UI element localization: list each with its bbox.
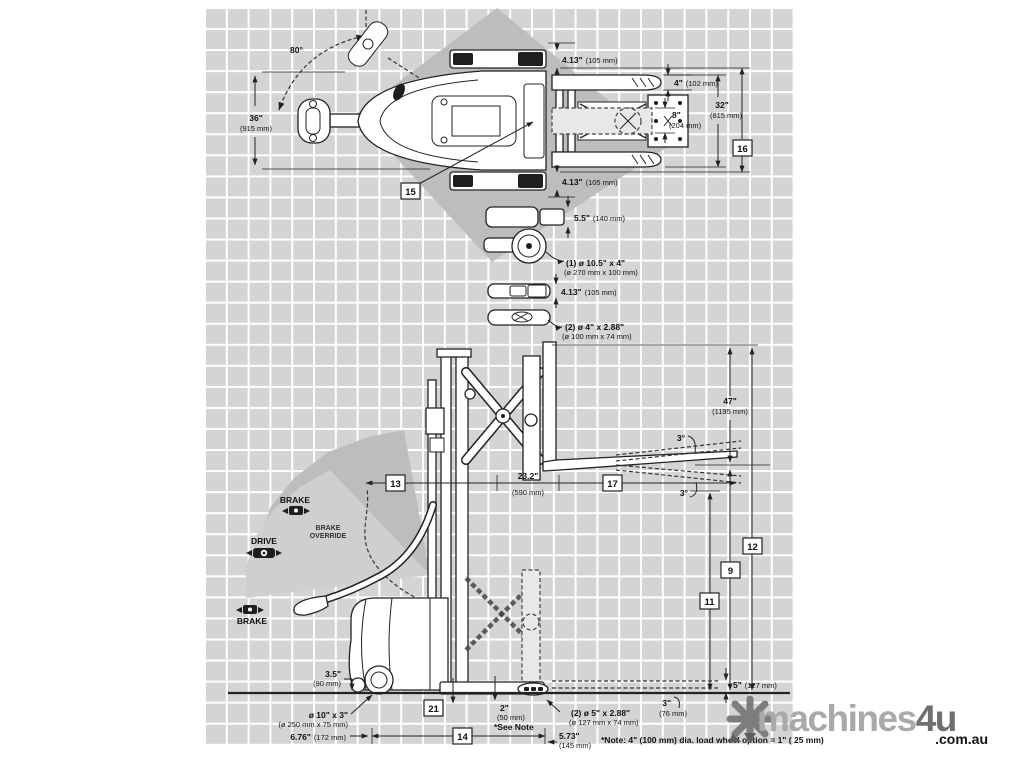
inner-spread-mm: (204 mm): [669, 121, 702, 130]
tilt-down-label: 3°: [680, 488, 689, 498]
tiller-width-mm: (915 mm): [240, 124, 273, 133]
svg-text:4.13"(105 mm): 4.13"(105 mm): [562, 177, 618, 187]
caster-width-mm: (105 mm): [585, 288, 618, 297]
fork-bottom: [552, 152, 661, 167]
inner-spread-in: 8": [672, 110, 681, 120]
drive-tire-bar: [486, 207, 538, 227]
watermark-domain: .com.au: [935, 731, 988, 747]
fork-thickness-in: 4": [674, 78, 683, 88]
drive-tire-width-mm: (140 mm): [593, 214, 626, 223]
lift-height-mm: (1195 mm): [712, 407, 748, 416]
outrigger-bottom-in: 4.13": [562, 177, 583, 187]
watermark-name: machines: [757, 698, 917, 739]
marker-11: 11: [704, 597, 715, 608]
svg-text:5"(127 mm): 5"(127 mm): [733, 680, 777, 690]
marker-15: 15: [405, 187, 416, 198]
reach-in: 23.2": [518, 471, 539, 481]
marker-16: 16: [737, 144, 748, 155]
tip-height-in: 3": [662, 698, 671, 708]
drive-wheel-size: ø 10" x 3": [309, 710, 348, 720]
drive-wheel-size-mm: (ø 250 mm x 75 mm): [278, 720, 348, 729]
marker-21: 21: [428, 704, 439, 715]
svg-text:4.13"(105 mm): 4.13"(105 mm): [561, 287, 617, 297]
gap-in: 2": [500, 703, 509, 713]
tip-height-mm: (76 mm): [659, 709, 687, 718]
underclearance-mm: (90 mm): [313, 679, 341, 688]
load-wheel-size-top: (2) ø 4" x 2.88": [565, 322, 624, 332]
outrigger-top-mm: (105 mm): [586, 56, 619, 65]
overhang-mm: (145 mm): [559, 741, 592, 750]
load-wheel-size-top-mm: (ø 100 mm x 74 mm): [562, 332, 632, 341]
load-wheel-size-side-mm: (ø 127 mm x 74 mm): [569, 718, 639, 727]
overhang-in: 5.73": [559, 731, 580, 741]
marker-17: 17: [607, 479, 618, 490]
front-to-wheel-in: 6.76": [290, 732, 311, 742]
marker-9: 9: [728, 566, 733, 577]
outrigger-top-in: 4.13": [562, 55, 583, 65]
see-note-label: *See Note: [494, 722, 534, 732]
swing-angle-label: 80°: [290, 45, 303, 55]
svg-text:4.13"(105 mm): 4.13"(105 mm): [562, 55, 618, 65]
outrigger-bottom-mm: (105 mm): [586, 178, 619, 187]
lowered-height-mm: (127 mm): [745, 681, 778, 690]
gap-mm: (50 mm): [497, 713, 525, 722]
load-wheel-size-side: (2) ø 5" x 2.88": [571, 708, 630, 718]
svg-text:4"(102 mm): 4"(102 mm): [674, 78, 718, 88]
svg-text:6.76"(172 mm): 6.76"(172 mm): [290, 732, 346, 742]
diagram-svg: 80° 36" (915 mm) 4.13"(105 mm) 4"(102 mm…: [0, 0, 1024, 768]
marker-13: 13: [390, 479, 401, 490]
fork-back-raised: [543, 342, 556, 464]
fork-top: [552, 75, 661, 90]
drive-label: DRIVE: [251, 536, 277, 546]
drive-tire-size-mm: (ø 270 mm x 100 mm): [564, 268, 638, 277]
tilt-up-label: 3°: [677, 433, 686, 443]
fork-thickness-mm: (102 mm): [686, 79, 719, 88]
tiller-width-in: 36": [249, 113, 263, 123]
marker-14: 14: [457, 732, 468, 743]
brake-top-label: BRAKE: [280, 495, 311, 505]
fork-spread-mm: (815 mm): [710, 111, 743, 120]
reach-mm: (590 mm): [512, 488, 545, 497]
lift-height-in: 47": [723, 396, 737, 406]
drive-tire-size: (1) ø 10.5" x 4": [566, 258, 625, 268]
mast-rail-rear: [456, 352, 468, 690]
caster-width-in: 4.13": [561, 287, 582, 297]
brake-override-line1: BRAKE: [316, 525, 341, 532]
brake-override-line2: OVERRIDE: [310, 533, 347, 540]
brake-bottom-label: BRAKE: [237, 616, 268, 626]
marker-12: 12: [747, 542, 758, 553]
drive-tire-width-in: 5.5": [574, 213, 590, 223]
front-to-wheel-mm: (172 mm): [314, 733, 347, 742]
lowered-height-in: 5": [733, 680, 742, 690]
fork-spread-in: 32": [715, 100, 729, 110]
drive-wheel-side: [365, 666, 393, 694]
underclearance-in: 3.5": [325, 669, 341, 679]
watermark-wordmark: machines4u: [757, 698, 956, 739]
stacker-dimension-diagram: 80° 36" (915 mm) 4.13"(105 mm) 4"(102 mm…: [0, 0, 1024, 768]
svg-text:5.5"(140 mm): 5.5"(140 mm): [574, 213, 625, 223]
